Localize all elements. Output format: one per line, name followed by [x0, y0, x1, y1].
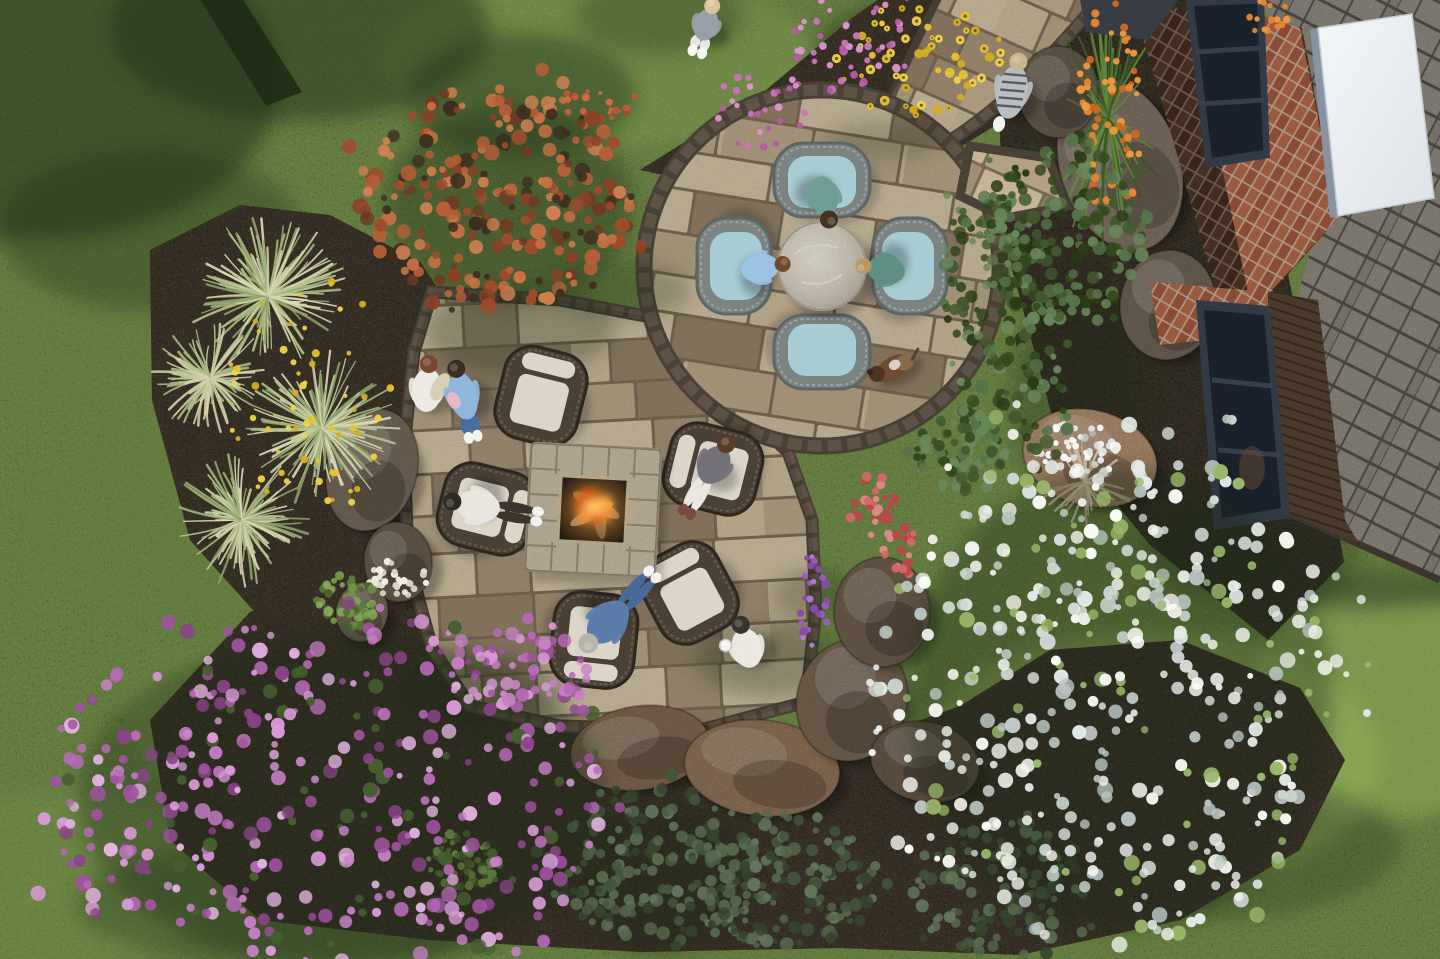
scene-svg	[0, 0, 1440, 959]
backyard-rendering: Aerial 3D rendering of backyard paver pa…	[0, 0, 1440, 959]
dining-chair	[764, 306, 870, 389]
